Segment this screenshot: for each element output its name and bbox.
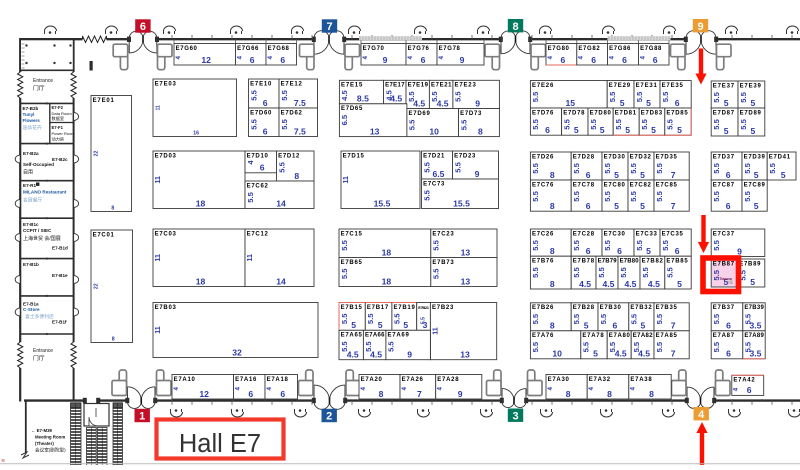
svg-text:5.5: 5.5	[531, 341, 540, 352]
svg-text:5: 5	[351, 320, 356, 330]
svg-text:9: 9	[460, 55, 465, 65]
svg-text:E7C12: E7C12	[247, 231, 269, 237]
svg-text:E7-B2b: E7-B2b	[23, 106, 39, 111]
svg-text:E7C82: E7C82	[630, 182, 652, 188]
svg-text:E7C73: E7C73	[423, 181, 445, 187]
svg-text:5.5: 5.5	[453, 161, 462, 172]
svg-text:5.5: 5.5	[531, 190, 540, 201]
svg-text:5: 5	[640, 170, 645, 180]
svg-text:18: 18	[382, 276, 392, 286]
svg-text:E7E29: E7E29	[609, 83, 631, 89]
svg-text:6: 6	[726, 201, 731, 211]
svg-text:4.5: 4.5	[579, 279, 591, 289]
svg-text:E7-B1e: E7-B1e	[52, 273, 68, 278]
svg-text:5.5: 5.5	[531, 313, 540, 324]
svg-text:E7E19: E7E19	[408, 83, 429, 89]
svg-text:E7A10: E7A10	[174, 377, 196, 383]
svg-text:4.5: 4.5	[370, 350, 382, 360]
svg-text:E7D26: E7D26	[532, 154, 554, 160]
svg-text:E7D78: E7D78	[563, 110, 585, 116]
svg-text:E7C33: E7C33	[636, 231, 658, 237]
svg-text:5.5: 5.5	[249, 89, 258, 100]
svg-text:4: 4	[578, 56, 585, 60]
svg-text:5.5: 5.5	[422, 189, 431, 200]
svg-text:11: 11	[155, 105, 161, 111]
svg-text:3.5: 3.5	[750, 321, 762, 331]
svg-text:6.5: 6.5	[340, 114, 349, 125]
svg-text:6: 6	[140, 21, 146, 33]
svg-text:7: 7	[417, 389, 422, 399]
svg-text:8: 8	[550, 170, 555, 180]
svg-text:9: 9	[458, 389, 463, 399]
svg-text:E7C28: E7C28	[573, 231, 595, 237]
svg-text:8: 8	[294, 171, 299, 181]
svg-text:E7E01: E7E01	[93, 98, 115, 104]
svg-text:E7B37: E7B37	[713, 305, 735, 311]
svg-text:E7D87: E7D87	[713, 110, 735, 116]
svg-text:E7-B1a: E7-B1a	[23, 302, 39, 307]
svg-text:E7E23: E7E23	[455, 83, 477, 89]
svg-text:E7G88: E7G88	[640, 46, 662, 52]
svg-text:4: 4	[266, 387, 273, 391]
svg-text:4: 4	[547, 56, 554, 60]
svg-text:5: 5	[593, 349, 598, 359]
svg-text:E7E26: E7E26	[532, 83, 554, 89]
svg-text:13: 13	[461, 247, 471, 257]
svg-text:5.5: 5.5	[280, 89, 289, 100]
svg-text:Entrance: Entrance	[33, 78, 53, 84]
svg-text:门厅: 门厅	[33, 84, 45, 92]
svg-text:4: 4	[639, 56, 646, 60]
svg-text:6: 6	[586, 170, 591, 180]
svg-text:8: 8	[478, 126, 483, 136]
svg-text:4: 4	[407, 56, 414, 60]
svg-text:E7B39: E7B39	[744, 305, 764, 311]
svg-text:E7B19: E7B19	[394, 305, 416, 311]
svg-text:E7D23: E7D23	[454, 153, 476, 159]
svg-text:E7G66: E7G66	[237, 46, 259, 52]
svg-text:E7C62: E7C62	[247, 183, 269, 189]
svg-text:E7B17: E7B17	[367, 305, 389, 311]
svg-text:E7D76: E7D76	[532, 110, 554, 116]
svg-text:E7A42: E7A42	[733, 378, 755, 384]
svg-text:8: 8	[112, 336, 115, 342]
svg-text:门厅: 门厅	[33, 354, 45, 362]
svg-text:5.5: 5.5	[597, 266, 606, 277]
svg-text:E7E15: E7E15	[341, 83, 363, 89]
svg-text:E7-B2c: E7-B2c	[52, 157, 68, 162]
svg-text:E7B78: E7B78	[573, 259, 595, 265]
svg-text:E7B28: E7B28	[573, 305, 595, 311]
svg-text:6: 6	[622, 55, 627, 65]
svg-text:6: 6	[263, 126, 268, 136]
svg-text:11: 11	[155, 326, 162, 334]
svg-text:8.5: 8.5	[357, 94, 369, 104]
svg-text:4: 4	[438, 56, 445, 60]
svg-text:E7-B1d: E7-B1d	[52, 246, 68, 251]
svg-text:E7D30: E7D30	[604, 154, 626, 160]
svg-text:4.5: 4.5	[648, 279, 660, 289]
svg-text:MILANO Restaurant: MILANO Restaurant	[23, 190, 67, 195]
svg-text:5.5: 5.5	[572, 190, 581, 201]
svg-text:6: 6	[263, 98, 268, 108]
svg-text:E7E35: E7E35	[662, 83, 684, 89]
svg-text:7: 7	[326, 21, 332, 33]
svg-text:5.5: 5.5	[408, 119, 417, 130]
svg-text:4.5: 4.5	[603, 279, 615, 289]
svg-text:E7D15: E7D15	[343, 153, 365, 159]
svg-text:5.5: 5.5	[641, 266, 650, 277]
svg-text:E7B35: E7B35	[656, 305, 678, 311]
svg-text:← E7-M39: ← E7-M39	[31, 428, 53, 433]
svg-text:5: 5	[614, 170, 619, 180]
svg-text:E7A38: E7A38	[630, 377, 652, 383]
svg-text:E7B82: E7B82	[642, 259, 664, 265]
svg-text:E7-F1: E7-F1	[52, 125, 64, 130]
svg-text:E7A16: E7A16	[235, 377, 257, 383]
svg-text:E7B32: E7B32	[630, 305, 652, 311]
svg-text:E7E39: E7E39	[740, 83, 762, 89]
svg-text:E7D35: E7D35	[656, 154, 678, 160]
svg-text:Entrance: Entrance	[33, 348, 53, 354]
svg-text:5: 5	[751, 98, 756, 108]
svg-text:6: 6	[613, 321, 618, 331]
svg-text:5.5: 5.5	[629, 162, 638, 173]
svg-text:3: 3	[512, 410, 518, 422]
svg-text:5: 5	[646, 246, 651, 256]
svg-text:11: 11	[247, 254, 254, 262]
svg-text:5.5: 5.5	[655, 190, 664, 201]
svg-text:7: 7	[671, 349, 676, 359]
svg-text:5.5: 5.5	[531, 118, 540, 129]
svg-text:E7A87: E7A87	[713, 333, 735, 339]
svg-text:E7B80: E7B80	[620, 259, 640, 265]
svg-text:6.5: 6.5	[433, 169, 445, 179]
svg-text:E7A20: E7A20	[361, 377, 383, 383]
svg-text:E7A69: E7A69	[388, 333, 410, 339]
svg-text:5: 5	[600, 125, 605, 135]
svg-text:8: 8	[649, 389, 654, 399]
svg-text:6: 6	[675, 246, 680, 256]
svg-text:动力房: 动力房	[52, 136, 65, 143]
svg-text:7: 7	[671, 170, 676, 180]
svg-text:E7-R1: E7-R1	[23, 183, 36, 188]
svg-text:E7C78: E7C78	[573, 182, 595, 188]
svg-text:4.5: 4.5	[615, 349, 627, 359]
svg-text:5: 5	[403, 320, 408, 330]
svg-text:5.5: 5.5	[712, 313, 721, 324]
svg-text:5.5: 5.5	[655, 162, 664, 173]
svg-text:E7E37: E7E37	[713, 83, 735, 89]
svg-text:8: 8	[607, 389, 612, 399]
svg-text:16: 16	[193, 130, 199, 136]
svg-text:4: 4	[401, 387, 408, 391]
svg-text:Tunyl: Tunyl	[23, 112, 35, 117]
svg-text:22: 22	[93, 151, 99, 157]
svg-text:13: 13	[370, 126, 380, 136]
svg-text:E7B73: E7B73	[432, 260, 454, 266]
svg-text:6: 6	[617, 246, 622, 256]
svg-text:E7D60: E7D60	[250, 110, 272, 116]
svg-text:10: 10	[429, 126, 439, 136]
svg-text:9: 9	[737, 246, 742, 256]
svg-text:会议室(剧院型): 会议室(剧院型)	[35, 447, 66, 454]
svg-text:E7A78: E7A78	[582, 333, 604, 339]
svg-text:6: 6	[586, 201, 591, 211]
svg-text:5: 5	[625, 125, 630, 135]
svg-text:5.5: 5.5	[459, 119, 468, 130]
svg-text:5.5: 5.5	[454, 91, 463, 102]
svg-text:5.5: 5.5	[666, 266, 675, 277]
svg-text:E7A26: E7A26	[402, 377, 424, 383]
svg-text:5.5: 5.5	[572, 266, 581, 277]
svg-text:E7B26: E7B26	[532, 305, 554, 311]
svg-text:4: 4	[362, 56, 369, 60]
svg-text:E7G60: E7G60	[176, 46, 198, 52]
svg-text:E7E10: E7E10	[250, 81, 272, 87]
svg-text:5.5: 5.5	[603, 162, 612, 173]
svg-text:5.5: 5.5	[531, 239, 540, 250]
svg-text:5: 5	[640, 201, 645, 211]
svg-text:15.5: 15.5	[453, 198, 470, 208]
svg-text:5: 5	[614, 201, 619, 211]
svg-text:18: 18	[196, 198, 206, 208]
svg-text:4: 4	[236, 56, 243, 60]
svg-text:E7G76: E7G76	[408, 46, 430, 52]
svg-text:5.5: 5.5	[246, 191, 255, 202]
svg-text:5.5: 5.5	[340, 313, 349, 324]
svg-text:上海世贸 会/国展: 上海世贸 会/国展	[23, 235, 61, 242]
svg-text:5.5: 5.5	[630, 313, 639, 324]
svg-text:E7D65: E7D65	[341, 106, 363, 112]
svg-text:6: 6	[726, 349, 731, 359]
svg-text:E7C89: E7C89	[744, 182, 766, 188]
svg-text:E7D73: E7D73	[460, 111, 482, 117]
svg-text:8: 8	[550, 279, 555, 289]
svg-text:5.5: 5.5	[739, 118, 748, 129]
svg-text:5: 5	[781, 170, 786, 180]
svg-text:Hall E7: Hall E7	[179, 430, 261, 458]
svg-text:5.5: 5.5	[340, 239, 349, 250]
svg-text:E7B30: E7B30	[600, 305, 622, 311]
svg-text:E7C80: E7C80	[604, 182, 626, 188]
svg-text:5.5: 5.5	[603, 239, 612, 250]
svg-text:5: 5	[724, 98, 729, 108]
svg-text:8: 8	[379, 389, 384, 399]
svg-text:E7D03: E7D03	[155, 153, 177, 159]
svg-text:5.5: 5.5	[712, 118, 721, 129]
svg-text:E7A85: E7A85	[656, 333, 678, 339]
svg-text:E7C76: E7C76	[532, 182, 554, 188]
svg-text:9: 9	[475, 98, 480, 108]
svg-text:4.5: 4.5	[625, 279, 637, 289]
svg-text:E7B23: E7B23	[432, 305, 454, 311]
svg-text:5.5: 5.5	[249, 118, 258, 129]
svg-text:E7A66: E7A66	[365, 333, 385, 339]
svg-text:E7G70: E7G70	[363, 46, 385, 52]
svg-text:6: 6	[248, 389, 253, 399]
svg-text:5.5: 5.5	[640, 118, 649, 129]
svg-text:5.5: 5.5	[739, 91, 748, 102]
svg-text:5.5: 5.5	[712, 162, 721, 173]
svg-text:4: 4	[547, 387, 554, 391]
svg-text:E7G68: E7G68	[268, 46, 290, 52]
svg-text:7.5: 7.5	[294, 98, 306, 108]
svg-text:E7G86: E7G86	[609, 46, 631, 52]
svg-text:Self-Occupied: Self-Occupied	[23, 162, 54, 167]
svg-text:3: 3	[423, 320, 428, 330]
svg-text:5.5: 5.5	[743, 190, 752, 201]
svg-text:E7B65: E7B65	[341, 260, 363, 266]
svg-text:E7B21: E7B21	[418, 305, 429, 310]
svg-text:11: 11	[155, 176, 162, 184]
svg-text:5: 5	[574, 125, 579, 135]
svg-text:6: 6	[747, 385, 752, 395]
svg-text:6: 6	[726, 321, 731, 331]
svg-text:6: 6	[653, 55, 658, 65]
svg-text:32: 32	[232, 347, 242, 357]
svg-text:Meeting Room: Meeting Room	[35, 435, 65, 440]
svg-text:(Theater): (Theater)	[35, 441, 54, 446]
svg-text:6: 6	[260, 163, 265, 173]
svg-text:5.5: 5.5	[572, 162, 581, 173]
svg-text:E7C30: E7C30	[604, 231, 626, 237]
svg-text:14: 14	[276, 276, 286, 286]
svg-text:E7E03: E7E03	[155, 81, 177, 87]
svg-text:5.5: 5.5	[572, 313, 581, 324]
svg-text:E7E31: E7E31	[636, 83, 658, 89]
svg-text:8: 8	[111, 205, 114, 211]
svg-text:5.5: 5.5	[629, 190, 638, 201]
svg-text:5.5: 5.5	[340, 268, 349, 279]
svg-text:≋: ≋	[1, 458, 5, 464]
svg-text:E7A30: E7A30	[548, 377, 570, 383]
svg-text:6: 6	[280, 55, 285, 65]
svg-text:E7D81: E7D81	[615, 110, 637, 116]
svg-text:5: 5	[754, 201, 759, 211]
svg-text:5.5: 5.5	[743, 162, 752, 173]
svg-text:E7G78: E7G78	[439, 46, 461, 52]
svg-text:5.5: 5.5	[531, 266, 540, 277]
svg-text:5.5: 5.5	[432, 268, 441, 279]
svg-text:5.5: 5.5	[393, 313, 402, 324]
svg-text:6: 6	[726, 170, 731, 180]
svg-text:7: 7	[671, 321, 676, 331]
svg-text:E7C15: E7C15	[341, 231, 363, 237]
svg-text:5.5: 5.5	[531, 91, 540, 102]
svg-text:18: 18	[196, 276, 206, 286]
svg-text:自用: 自用	[23, 169, 33, 176]
svg-text:E7C87: E7C87	[713, 182, 735, 188]
svg-text:7: 7	[671, 201, 676, 211]
svg-text:E7A89: E7A89	[744, 333, 764, 339]
svg-text:5.5: 5.5	[582, 341, 591, 352]
svg-text:5.5: 5.5	[635, 239, 644, 250]
svg-text:5: 5	[651, 125, 656, 135]
svg-text:5.5: 5.5	[562, 118, 571, 129]
svg-text:4.5: 4.5	[390, 94, 402, 104]
svg-text:15.5: 15.5	[374, 198, 391, 208]
svg-text:E7E12: E7E12	[281, 81, 303, 87]
svg-text:4: 4	[234, 387, 241, 391]
svg-text:5.5: 5.5	[635, 91, 644, 102]
svg-text:E7C35: E7C35	[662, 231, 684, 237]
svg-text:E7C37: E7C37	[713, 231, 735, 237]
svg-text:5.5: 5.5	[712, 341, 721, 352]
svg-text:E7B87: E7B87	[713, 261, 735, 267]
svg-text:E7-B1f: E7-B1f	[52, 320, 67, 325]
svg-text:E7G80: E7G80	[548, 46, 570, 52]
svg-text:E7A28: E7A28	[437, 377, 459, 383]
svg-text:E7A82: E7A82	[633, 333, 653, 339]
svg-text:5.5: 5.5	[655, 341, 664, 352]
svg-text:E7C85: E7C85	[656, 182, 678, 188]
svg-text:E7D10: E7D10	[247, 153, 269, 159]
svg-text:E7A32: E7A32	[589, 377, 611, 383]
svg-text:13: 13	[460, 350, 470, 360]
svg-text:E7B76: E7B76	[532, 259, 554, 265]
svg-text:22: 22	[93, 283, 99, 289]
svg-text:12: 12	[199, 389, 209, 399]
svg-text:9: 9	[407, 350, 412, 360]
svg-text:E7D83: E7D83	[641, 110, 663, 116]
svg-text:E7D62: E7D62	[281, 110, 303, 116]
svg-text:8: 8	[550, 321, 555, 331]
svg-text:5.5: 5.5	[619, 266, 628, 277]
svg-text:自营: 自营	[726, 280, 733, 285]
svg-text:Power Room: Power Room	[52, 131, 76, 136]
svg-text:E7D37: E7D37	[713, 154, 735, 160]
svg-text:6: 6	[586, 246, 591, 256]
svg-text:6: 6	[545, 125, 550, 135]
svg-text:5.5: 5.5	[599, 313, 608, 324]
svg-text:4: 4	[173, 387, 180, 391]
svg-text:12: 12	[201, 55, 211, 65]
svg-text:8: 8	[512, 21, 518, 33]
svg-text:5: 5	[620, 98, 625, 108]
svg-text:5.5: 5.5	[366, 313, 375, 324]
svg-text:8: 8	[566, 389, 571, 399]
svg-text:4: 4	[698, 409, 705, 421]
svg-text:18: 18	[382, 247, 392, 257]
svg-text:2: 2	[326, 411, 332, 423]
svg-text:喜士多便利店: 喜士多便利店	[25, 313, 54, 320]
svg-text:5.5: 5.5	[661, 91, 670, 102]
svg-text:数据室: 数据室	[52, 115, 65, 122]
svg-text:5.5: 5.5	[666, 118, 675, 129]
svg-text:5.5: 5.5	[572, 239, 581, 250]
svg-text:E7C03: E7C03	[155, 231, 177, 237]
svg-text:E7B15: E7B15	[341, 305, 363, 311]
svg-text:4: 4	[437, 387, 444, 391]
svg-text:11: 11	[343, 176, 350, 184]
svg-text:5.5: 5.5	[603, 190, 612, 201]
svg-text:5: 5	[646, 98, 651, 108]
svg-text:5.5: 5.5	[277, 161, 286, 172]
svg-text:5: 5	[750, 277, 755, 287]
svg-text:4.5: 4.5	[413, 98, 425, 108]
svg-text:E7B89: E7B89	[739, 261, 761, 267]
svg-text:E7A18: E7A18	[267, 377, 289, 383]
svg-text:5: 5	[751, 126, 756, 136]
svg-text:15: 15	[566, 98, 576, 108]
svg-text:6: 6	[561, 55, 566, 65]
svg-text:E7A65: E7A65	[341, 333, 363, 339]
svg-text:5.5: 5.5	[608, 91, 617, 102]
svg-text:4.5: 4.5	[340, 89, 349, 100]
svg-text:E7D28: E7D28	[573, 154, 595, 160]
svg-text:4: 4	[588, 387, 595, 391]
